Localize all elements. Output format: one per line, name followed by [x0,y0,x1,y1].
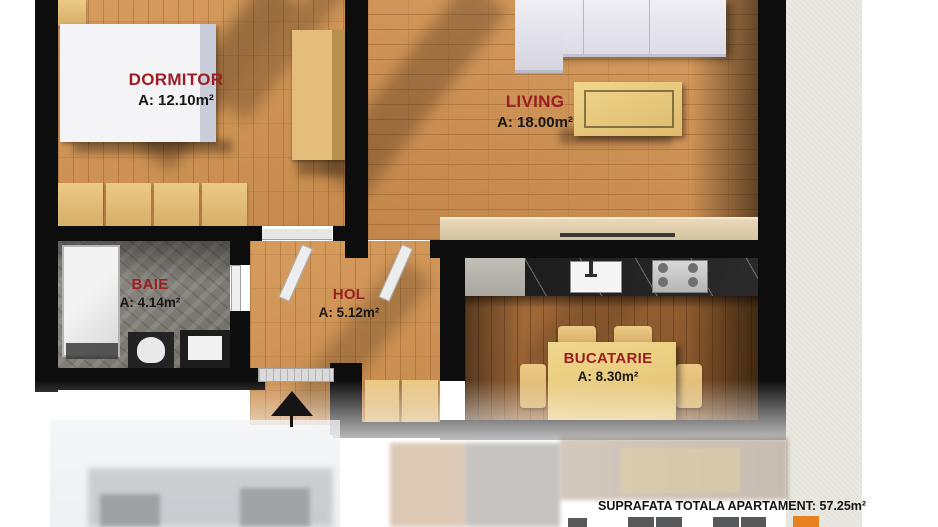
paper-background [786,0,862,527]
legend-block [713,517,739,527]
floorplan-image: DORMITOR A: 12.10m² LIVING A: 18.00m² BA… [0,0,938,527]
dresser [154,183,199,227]
burner-icon [658,277,668,287]
wall [345,0,368,258]
sink-basin [188,336,222,360]
reflection-table [620,448,740,493]
bathroom-door [231,265,241,313]
door-threshold [262,229,332,240]
shower-mat [66,343,118,359]
wall [758,0,788,440]
dresser [202,183,247,227]
wall [430,240,788,258]
bed [60,24,216,142]
hall-closet [402,380,438,422]
reflection-mist [50,420,340,527]
legend-block-orange [793,516,819,527]
shower [62,245,120,357]
kitchen-cabinet [465,258,525,296]
burner-icon [688,277,698,287]
wardrobe [58,0,86,26]
wall [35,368,265,390]
reflection-kitchen [560,438,788,500]
entrance-arrow-stem [290,416,293,427]
entrance-arrow-icon [271,391,313,416]
toilet-lid [137,337,165,363]
wall [230,241,250,265]
tall-cabinet [292,30,345,160]
burner-icon [658,263,668,273]
coffee-table-inset [584,90,674,128]
counter-shadow [465,296,758,308]
reflection-shape [240,488,310,527]
sofa-seam [583,0,584,54]
legend-block [656,517,682,527]
legend-block [568,518,587,527]
legend-block [628,517,654,527]
faucet-icon [585,274,597,277]
sofa-seam [649,0,650,54]
wall [440,258,465,381]
chair [676,364,702,408]
sofa-chaise [515,0,563,73]
hall-closet [365,380,399,422]
reflection-bathroom [88,468,333,527]
tv [560,233,675,237]
burner-icon [688,263,698,273]
dresser [58,183,103,227]
reflection-wood [390,443,465,527]
total-area-label: SUPRAFATA TOTALA APARTAMENT: 57.25m² [598,499,866,513]
dresser [106,183,151,227]
wall [440,420,788,440]
wall [333,422,440,438]
wall [35,226,262,241]
reflection-shape [100,494,160,527]
kitchen-sink [570,261,622,293]
reflection-shape [465,443,560,527]
wall [333,226,368,241]
entry-threshold [258,368,334,382]
chair [520,364,546,408]
kitchen-left-shadow [465,296,523,420]
legend-block [741,517,766,527]
dining-table [548,342,676,422]
wall [35,0,58,392]
wall [230,311,250,368]
